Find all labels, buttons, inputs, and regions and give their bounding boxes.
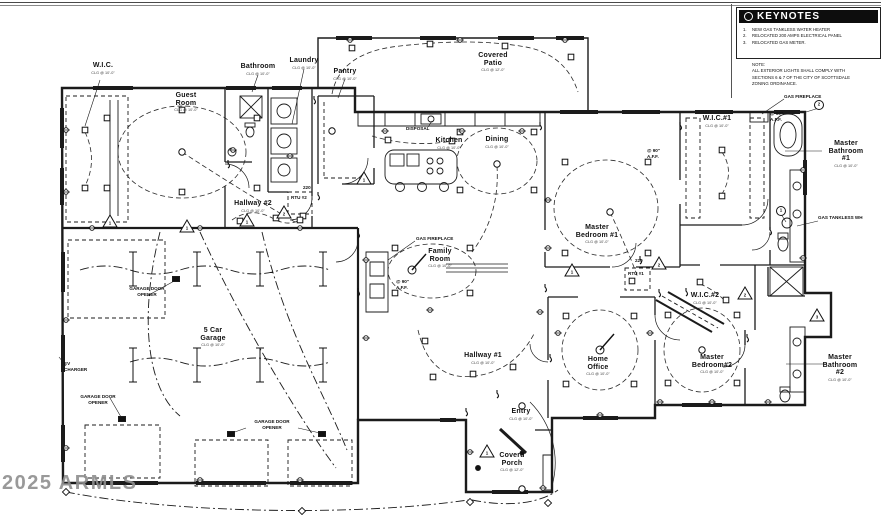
- room-ceiling: CLG @ 10'-0": [333, 77, 356, 81]
- recessed-light-symbol: [665, 312, 671, 318]
- annotation-garage-door-opener-3: GARAGE DOOR OPENER: [254, 419, 289, 430]
- room-label-master-bedroom-2: Master Bedroom#2CLG @ 10'-0": [692, 354, 732, 374]
- recessed-light-symbol: [467, 290, 473, 296]
- room-label-covered-porch: Coverd PorchCLG @ 12'-0": [499, 452, 524, 472]
- room-label-garage: 5 Car GarageCLG @ 10'-0": [200, 327, 225, 347]
- recessed-light-symbol: [422, 338, 428, 344]
- garage-house-walls: [63, 228, 358, 420]
- room-label-guest-room: Guest RoomCLG @ 10'-0": [174, 92, 197, 112]
- annotation-disposal: DISPOSAL: [406, 126, 429, 132]
- recessed-light-symbol: [645, 250, 651, 256]
- recessed-light-symbol: [457, 187, 463, 193]
- keynote-marker: 1: [109, 221, 111, 226]
- room-ceiling: CLG @ 10'-0": [174, 108, 197, 112]
- annotation-ev-charger: EV CHARGER: [64, 361, 87, 372]
- annotation-220-rtu2: 220: [303, 185, 311, 191]
- fan-feed-lines: [446, 264, 508, 272]
- recessed-light-symbol: [254, 185, 260, 191]
- exterior-light-node: [466, 498, 473, 505]
- room-name: Master Bedroom #1: [576, 224, 618, 239]
- keynotes-note: NOTE: ALL EXTERIOR LIGHTS SHALL COMPLY W…: [752, 62, 880, 88]
- keynote-marker: 2: [283, 212, 285, 217]
- annotation-garage-door-opener-2: GARAGE DOOR OPENER: [80, 394, 115, 405]
- ceiling-light-symbol: [179, 149, 185, 155]
- garage-door-opener-motor: [319, 432, 326, 437]
- recessed-light-symbol: [562, 250, 568, 256]
- room-label-hallway-1: Hallway #1CLG @ 10'-0": [464, 352, 502, 365]
- keynote-marker: 1: [571, 270, 573, 275]
- room-ceiling: CLG @ 10'-0": [691, 301, 719, 305]
- keynote-marker: 1: [186, 226, 188, 231]
- recessed-light-symbol: [430, 374, 436, 380]
- keynote-marker: 2: [658, 263, 660, 268]
- switch-symbol: [550, 354, 552, 362]
- annotation-220-rtu1: 220: [635, 258, 643, 264]
- annotation-aff-mb1: @ 90" A.F.F.: [647, 148, 660, 159]
- room-name: Master Bedroom#2: [692, 354, 732, 369]
- room-name: Pantry: [333, 68, 356, 76]
- room-name: Guest Room: [174, 92, 197, 107]
- ceiling-light-symbol: [494, 161, 500, 167]
- recessed-light-symbol: [392, 245, 398, 251]
- room-name: Covered Patio: [478, 52, 507, 67]
- room-ceiling: CLG @ 10'-0": [91, 71, 114, 75]
- recessed-light-symbol: [631, 313, 637, 319]
- room-ceiling: CLG @ 10'-0": [703, 124, 731, 128]
- recessed-light-symbol: [631, 381, 637, 387]
- room-label-wic-2: W.I.C.#2CLG @ 10'-0": [691, 292, 719, 305]
- ceiling-light-symbol: [329, 128, 335, 134]
- annotation-rtu-2: RTU #2: [291, 195, 307, 201]
- room-name: Laundry: [289, 57, 318, 65]
- recessed-light-symbol: [531, 187, 537, 193]
- room-ceiling: CLG @ 10'-0": [820, 378, 861, 382]
- interior-walls: [225, 88, 805, 430]
- garage-door-opener-motor: [228, 432, 235, 437]
- recessed-light-symbol: [563, 381, 569, 387]
- recessed-light-symbol: [563, 313, 569, 319]
- annotation-garage-door-opener-1: GARAGE DOOR OPENER: [129, 286, 164, 297]
- room-label-covered-patio: Covered PatioCLG @ 12'-0": [478, 52, 507, 72]
- garage-column: [193, 252, 201, 286]
- recessed-light-symbol: [568, 54, 574, 60]
- recessed-light-symbol: [697, 279, 703, 285]
- annotation-rtu-1: RTU #1: [628, 271, 644, 277]
- recessed-light-symbol: [502, 43, 508, 49]
- room-name: Dining: [485, 136, 508, 144]
- annotation-aff-family: @ 90" A.F.F.: [396, 279, 409, 290]
- room-label-hallway-2: Hallway #2CLG @ 10'-0": [234, 200, 272, 213]
- room-ceiling: CLG @ 10'-0": [234, 209, 272, 213]
- recessed-light-symbol: [104, 115, 110, 121]
- room-label-kitchen: KitchenCLG @ 10'-0": [435, 137, 462, 150]
- room-label-wic: W.I.C.CLG @ 10'-0": [91, 62, 114, 75]
- room-ceiling: CLG @ 10'-0": [200, 343, 225, 347]
- keynote-marker: 2: [744, 293, 746, 298]
- room-label-family-room: Family RoomCLG @ 10'-0": [428, 248, 451, 268]
- room-label-master-bathroom-2: Master Bathroom #2CLG @ 10'-0": [820, 354, 861, 382]
- room-name: Bathroom: [241, 63, 276, 71]
- room-name: Hallway #1: [464, 352, 502, 360]
- room-name: Hallway #2: [234, 200, 272, 208]
- garage-column: [319, 252, 327, 286]
- keynote-circle-marker: 2: [818, 102, 820, 107]
- room-name: Kitchen: [435, 137, 462, 145]
- recessed-light-symbol: [349, 45, 355, 51]
- keynote-bullet-icon: [744, 12, 753, 21]
- room-label-home-office: Home OfficeCLG @ 10'-0": [586, 356, 609, 376]
- garage-column: [129, 252, 137, 286]
- recessed-light-symbol: [723, 297, 729, 303]
- recessed-light-symbol: [82, 127, 88, 133]
- garage-column: [256, 252, 264, 286]
- ceiling-fan-blade: [412, 254, 426, 270]
- room-ceiling: CLG @ 12'-0": [478, 68, 507, 72]
- room-name: W.I.C.: [91, 62, 114, 70]
- room-label-entry: EntryCLG @ 10'-0": [509, 408, 532, 421]
- ceiling-light-symbol: [699, 347, 705, 353]
- room-name: Coverd Porch: [499, 452, 524, 467]
- recessed-light-symbol: [510, 364, 516, 370]
- keynote-marker: 1: [486, 451, 488, 456]
- room-ceiling: CLG @ 10'-0": [435, 146, 462, 150]
- room-name: W.I.C.#2: [691, 292, 719, 300]
- exterior-light-node: [544, 499, 551, 506]
- room-ceiling: CLG @ 10'-0": [464, 361, 502, 365]
- switch-symbol: [540, 122, 542, 130]
- room-label-wic-1: W.I.C.#1CLG @ 10'-0": [703, 115, 731, 128]
- switch-symbol: [545, 284, 547, 292]
- room-label-dining: DiningCLG @ 10'-0": [485, 136, 508, 149]
- keynote-marker: 1: [363, 178, 365, 183]
- wiring-dashdot: [66, 232, 558, 510]
- recessed-light-symbol: [531, 129, 537, 135]
- recessed-light-symbol: [385, 137, 391, 143]
- recessed-light-symbol: [297, 217, 303, 223]
- room-ceiling: CLG @ 10'-0": [289, 66, 318, 70]
- room-ceiling: CLG @ 10'-0": [509, 417, 532, 421]
- room-ceiling: CLG @ 10'-0": [829, 164, 864, 168]
- room-label-master-bedroom-1: Master Bedroom #1CLG @ 10'-0": [576, 224, 618, 244]
- recessed-light-symbol: [719, 193, 725, 199]
- switch-symbol: [686, 288, 688, 296]
- recessed-light-symbol: [467, 245, 473, 251]
- recessed-light-symbol: [562, 159, 568, 165]
- patio-walls: [318, 38, 588, 112]
- keynote-marker: 3: [816, 315, 818, 320]
- garage-column: [129, 348, 137, 382]
- switch-symbol: [228, 160, 230, 168]
- recessed-light-symbol: [82, 185, 88, 191]
- recessed-light-symbol: [665, 380, 671, 386]
- room-ceiling: CLG @ 10'-0": [576, 240, 618, 244]
- room-name: Master Bathroom #1: [829, 140, 864, 163]
- recessed-light-symbol: [645, 159, 651, 165]
- watermark: 2025 ARMLS: [2, 472, 137, 495]
- recessed-light-symbol: [734, 380, 740, 386]
- annotation-gas-fireplace-top: GAS FIREPLACE: [784, 94, 821, 100]
- room-name: Entry: [509, 408, 532, 416]
- recessed-light-symbol: [179, 189, 185, 195]
- room-ceiling: CLG @ 10'-0": [428, 264, 451, 268]
- switch-symbol: [318, 192, 320, 200]
- ceiling-light-symbol: [607, 209, 613, 215]
- keynote-marker: 1: [246, 220, 248, 225]
- door-arcs: [225, 158, 770, 486]
- recessed-light-symbol: [427, 41, 433, 47]
- floor-plan-sheet: { "keynotes": { "title": "KEYNOTES", "nu…: [0, 0, 881, 515]
- switch-symbol: [497, 390, 499, 398]
- room-label-laundry: LaundryCLG @ 10'-0": [289, 57, 318, 70]
- recessed-light-symbol: [470, 371, 476, 377]
- switch-symbol: [314, 96, 316, 104]
- garage-column: [193, 348, 201, 382]
- room-label-master-bathroom-1: Master Bathroom #1CLG @ 10'-0": [829, 140, 864, 168]
- room-name: 5 Car Garage: [200, 327, 225, 342]
- annotation-aff-mbath1: @ 90" A.F.F.: [770, 111, 783, 122]
- recessed-light-symbol: [629, 278, 635, 284]
- annotation-gas-fireplace-family: GAS FIREPLACE: [416, 236, 453, 242]
- room-ceiling: CLG @ 10'-0": [485, 145, 508, 149]
- keynotes-panel: KEYNOTES 1.NEW GAS TANKLESS WATER HEATER…: [736, 7, 881, 59]
- keynotes-header: KEYNOTES: [739, 10, 878, 23]
- switch-symbol: [747, 334, 749, 342]
- room-name: Family Room: [428, 248, 451, 263]
- garage-column: [319, 348, 327, 382]
- room-name: W.I.C.#1: [703, 115, 731, 123]
- recessed-light-symbol: [104, 185, 110, 191]
- recessed-light-symbol: [719, 147, 725, 153]
- keynote-text: RELOCATED GAS METER.: [752, 40, 806, 46]
- recessed-light-symbol: [254, 115, 260, 121]
- exterior-light-node: [298, 507, 305, 514]
- room-ceiling: CLG @ 10'-0": [241, 72, 276, 76]
- room-ceiling: CLG @ 12'-0": [499, 468, 524, 472]
- recessed-light-symbol: [734, 312, 740, 318]
- garage-door-opener-motor: [119, 417, 126, 422]
- entry-door-leaf: [500, 429, 526, 453]
- room-label-bathroom: BathroomCLG @ 10'-0": [241, 63, 276, 76]
- room-label-pantry: PantryCLG @ 10'-0": [333, 68, 356, 81]
- room-ceiling: CLG @ 10'-0": [692, 370, 732, 374]
- keynotes-title: KEYNOTES: [757, 11, 820, 22]
- switch-symbol: [466, 408, 468, 416]
- annotation-gas-tankless-wh: GAS TANKLESS WH: [818, 215, 863, 221]
- ceiling-light-symbol: [519, 486, 525, 492]
- keynotes-list: 1.NEW GAS TANKLESS WATER HEATER 2.RELOCA…: [743, 27, 878, 46]
- ceiling-fan-blade: [600, 334, 614, 350]
- keynote-number: 3.: [743, 40, 752, 46]
- room-ceiling: CLG @ 10'-0": [586, 372, 609, 376]
- room-name: Home Office: [586, 356, 609, 371]
- garage-door-opener-motor: [173, 277, 180, 282]
- recessed-light-symbol: [392, 290, 398, 296]
- switch-symbol: [659, 289, 661, 297]
- keynote-circle-marker: 1: [780, 208, 782, 213]
- keynote-item: 3.RELOCATED GAS METER.: [743, 40, 878, 46]
- room-name: Master Bathroom #2: [820, 354, 861, 377]
